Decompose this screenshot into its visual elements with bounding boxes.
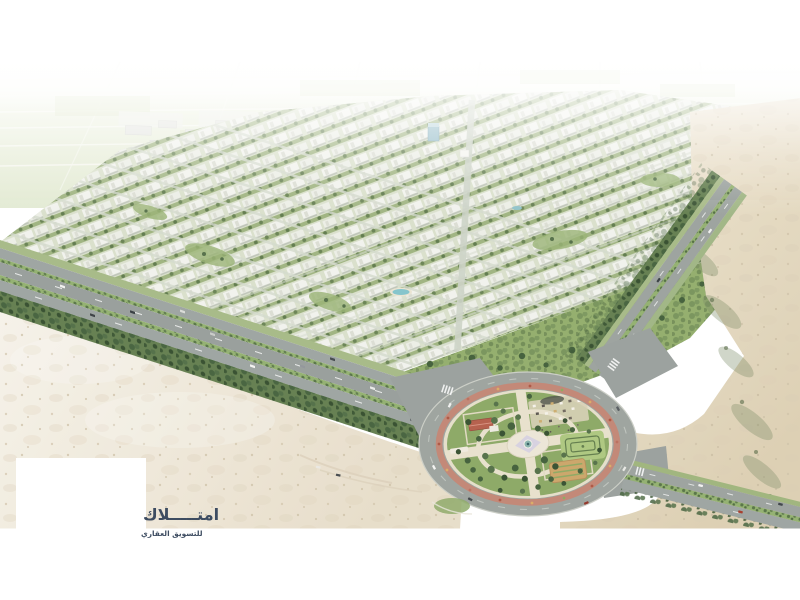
render-canvas: امتـــــلاك للتسويق العقاري <box>0 0 800 600</box>
bottom-margin <box>0 529 800 600</box>
logo-backdrop <box>16 458 146 538</box>
brand-tagline: للتسويق العقاري <box>141 529 203 538</box>
atmospheric-haze <box>0 0 800 215</box>
brand-name: امتـــــلاك <box>143 505 219 524</box>
aerial-render: امتـــــلاك للتسويق العقاري <box>0 0 800 600</box>
